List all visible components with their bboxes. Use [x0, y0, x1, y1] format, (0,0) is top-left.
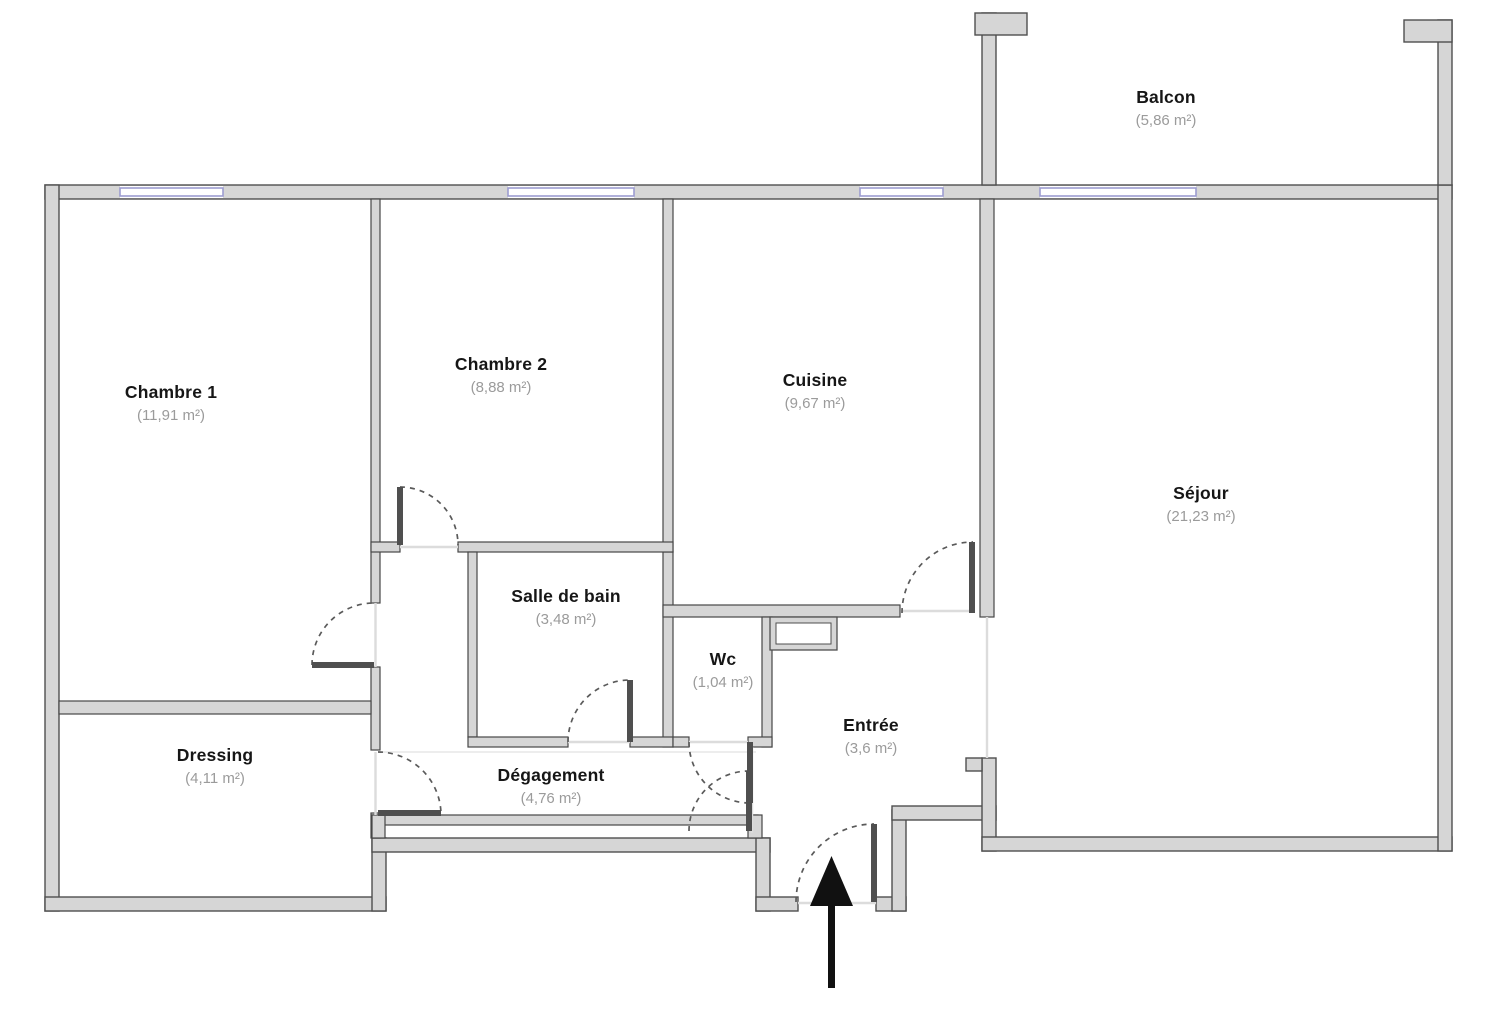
room-label-entree: Entrée (3,6 m²) — [843, 712, 899, 761]
room-label-chambre-2: Chambre 2 (8,88 m²) — [455, 351, 547, 400]
room-area: (4,11 m²) — [177, 768, 254, 791]
room-area: (5,86 m²) — [1136, 110, 1197, 133]
room-area: (4,76 m²) — [497, 788, 604, 811]
door-leaf-entrance — [871, 824, 877, 902]
room-name: Balcon — [1136, 84, 1197, 110]
room-name: Cuisine — [783, 367, 848, 393]
door-arc-sdb — [568, 680, 630, 742]
door-leaf-sdb — [627, 680, 633, 742]
room-name: Dégagement — [497, 762, 604, 788]
room-label-wc: Wc (1,04 m²) — [693, 646, 754, 695]
room-name: Entrée — [843, 712, 899, 738]
room-area: (3,48 m²) — [511, 609, 621, 632]
door-leaf-cuisine — [969, 542, 975, 613]
room-label-salle-de-bain: Salle de bain (3,48 m²) — [511, 583, 621, 632]
room-label-sejour: Séjour (21,23 m²) — [1166, 480, 1235, 529]
floor-plan-drawing — [0, 0, 1500, 1013]
room-label-degagement: Dégagement (4,76 m²) — [497, 762, 604, 811]
room-area: (1,04 m²) — [693, 672, 754, 695]
door-arc-cuisine — [902, 542, 973, 613]
entrance-arrow-icon — [810, 856, 853, 988]
floor-plan: Chambre 1 (11,91 m²) Chambre 2 (8,88 m²)… — [0, 0, 1500, 1013]
room-area: (3,6 m²) — [843, 738, 899, 761]
room-name: Wc — [693, 646, 754, 672]
room-label-chambre-1: Chambre 1 (11,91 m²) — [125, 379, 217, 428]
duct-niche — [770, 617, 837, 650]
door-arc-dressing — [378, 752, 441, 815]
room-name: Salle de bain — [511, 583, 621, 609]
room-name: Chambre 1 — [125, 379, 217, 405]
room-label-dressing: Dressing (4,11 m²) — [177, 742, 254, 791]
door-arc-wc — [689, 742, 750, 803]
door-arc-chambre2 — [400, 487, 458, 545]
door-arc-chambre1 — [312, 603, 374, 665]
room-name: Chambre 2 — [455, 351, 547, 377]
room-area: (8,88 m²) — [455, 377, 547, 400]
room-name: Séjour — [1166, 480, 1235, 506]
door-leaf-chambre2 — [397, 487, 403, 545]
door-leaf-chambre1 — [312, 662, 374, 668]
room-area: (11,91 m²) — [125, 405, 217, 428]
door-leaf-degagement — [746, 771, 752, 831]
door-leaf-dressing — [378, 810, 441, 816]
room-area: (9,67 m²) — [783, 393, 848, 416]
room-area: (21,23 m²) — [1166, 506, 1235, 529]
room-name: Dressing — [177, 742, 254, 768]
room-label-balcon: Balcon (5,86 m²) — [1136, 84, 1197, 133]
room-label-cuisine: Cuisine (9,67 m²) — [783, 367, 848, 416]
